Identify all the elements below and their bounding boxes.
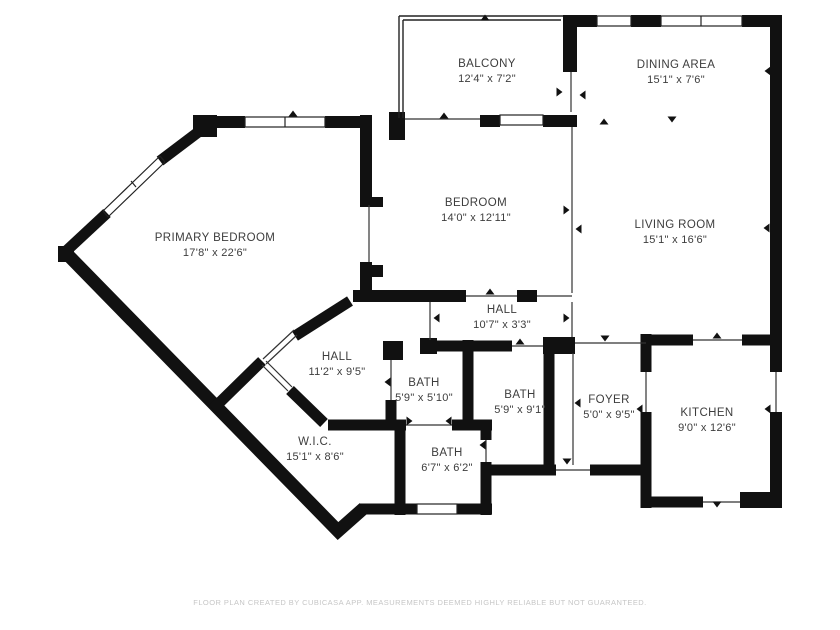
room-label-bath-mid: BATH 5'9" x 9'1" [494,388,545,418]
room-name: BEDROOM [441,196,511,211]
room-name: BATH [395,376,453,391]
room-label-living-room: LIVING ROOM 15'1" x 16'6" [634,218,715,248]
room-dimensions: 5'9" x 9'1" [494,403,545,418]
room-name: W.I.C. [286,435,344,450]
room-name: BALCONY [458,57,516,72]
room-dimensions: 9'0" x 12'6" [678,421,736,436]
floorplan-canvas: BALCONY 12'4" x 7'2" DINING AREA 15'1" x… [0,0,840,630]
room-dimensions: 5'9" x 5'10" [395,391,453,406]
room-dimensions: 12'4" x 7'2" [458,72,516,87]
room-name: HALL [473,303,531,318]
room-dimensions: 14'0" x 12'11" [441,211,511,226]
room-dimensions: 11'2" x 9'5" [309,365,366,380]
room-name: HALL [309,350,366,365]
room-name: BATH [421,446,472,461]
disclaimer-text: FLOOR PLAN CREATED BY CUBICASA APP. MEAS… [0,598,840,607]
room-label-hall-lower: HALL 11'2" x 9'5" [309,350,366,380]
room-label-bath-lower: BATH 6'7" x 6'2" [421,446,472,476]
room-name: DINING AREA [637,58,716,73]
room-label-balcony: BALCONY 12'4" x 7'2" [458,57,516,87]
room-label-wic: W.I.C. 15'1" x 8'6" [286,435,344,465]
room-dimensions: 10'7" x 3'3" [473,318,531,333]
room-dimensions: 17'8" x 22'6" [155,246,276,261]
floor-plan-drawing [0,0,840,630]
room-name: BATH [494,388,545,403]
room-dimensions: 15'1" x 8'6" [286,450,344,465]
room-label-kitchen: KITCHEN 9'0" x 12'6" [678,406,736,436]
door-ticks [141,15,771,510]
walls-diagonal [64,127,364,531]
room-label-hall-upper: HALL 10'7" x 3'3" [473,303,531,333]
room-name: LIVING ROOM [634,218,715,233]
room-dimensions: 15'1" x 16'6" [634,233,715,248]
room-label-primary-bedroom: PRIMARY BEDROOM 17'8" x 22'6" [155,231,276,261]
room-dimensions: 6'7" x 6'2" [421,461,472,476]
room-name: PRIMARY BEDROOM [155,231,276,246]
room-name: KITCHEN [678,406,736,421]
room-label-foyer: FOYER 5'0" x 9'5" [583,393,634,423]
room-label-bath-small: BATH 5'9" x 5'10" [395,376,453,406]
wall-blocks [58,15,782,508]
room-label-bedroom: BEDROOM 14'0" x 12'11" [441,196,511,226]
room-dimensions: 15'1" x 7'6" [637,73,716,88]
room-label-dining-area: DINING AREA 15'1" x 7'6" [637,58,716,88]
room-name: FOYER [583,393,634,408]
room-dimensions: 5'0" x 9'5" [583,408,634,423]
